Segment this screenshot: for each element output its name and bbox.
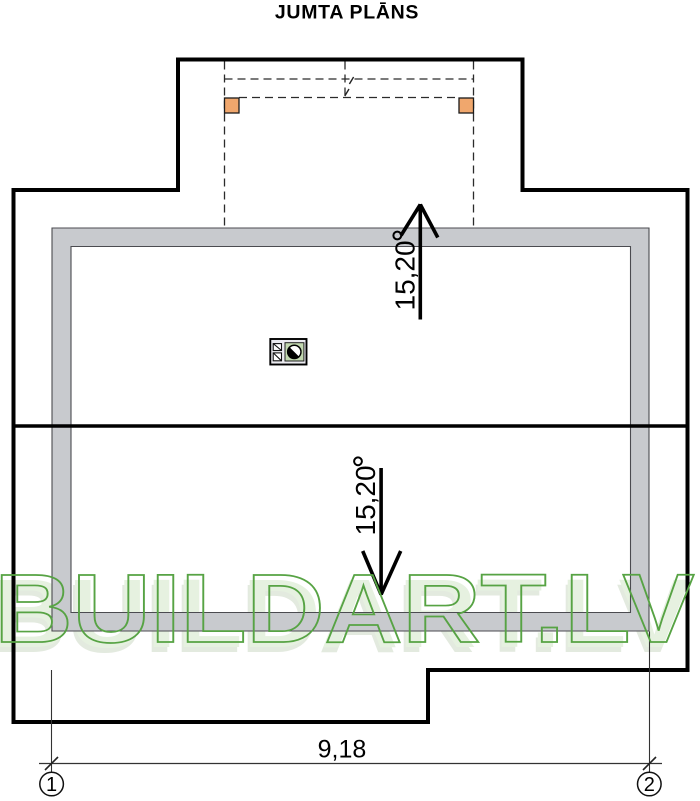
svg-text:BUILDART.LV: BUILDART.LV xyxy=(0,554,695,663)
svg-text:15,20: 15,20 xyxy=(389,240,420,310)
svg-text:JUMTA PLĀNS: JUMTA PLĀNS xyxy=(275,2,419,24)
svg-text:1: 1 xyxy=(46,774,57,796)
svg-text:15,20: 15,20 xyxy=(350,465,381,535)
svg-text:9,18: 9,18 xyxy=(318,736,367,764)
svg-text:2: 2 xyxy=(644,774,655,796)
